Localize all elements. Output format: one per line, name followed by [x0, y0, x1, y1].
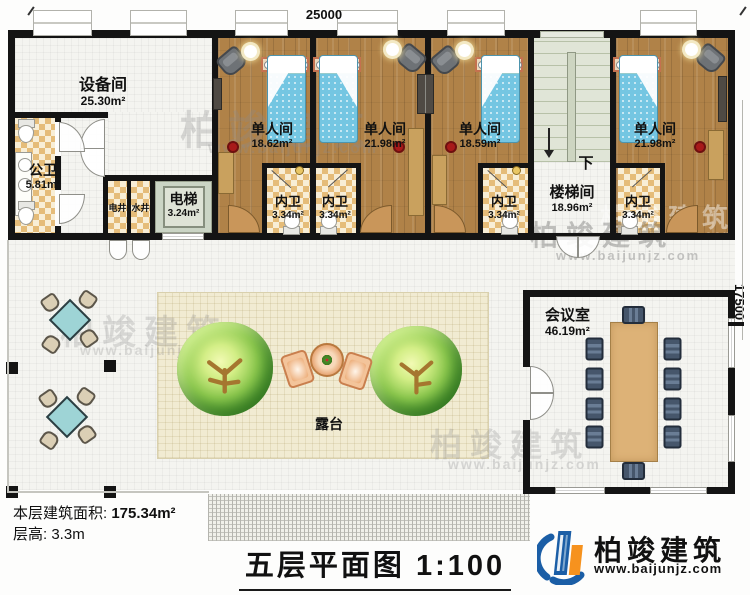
tree-branches — [387, 344, 446, 400]
conference-chair — [622, 462, 645, 480]
room-label-public-wc: 公卫5.81m² — [16, 163, 70, 191]
wc3-door-hinge — [512, 166, 521, 175]
facade-window-1 — [33, 10, 92, 36]
wc1-door-hinge — [295, 166, 304, 175]
column — [104, 360, 116, 372]
dimension-tick — [739, 6, 746, 15]
facade-window-3 — [235, 10, 288, 36]
tree-branches — [194, 341, 255, 399]
floor-lamp — [458, 44, 471, 57]
room-label-elec-shaft: 电井 — [108, 203, 127, 213]
dimension-ext-line — [742, 100, 743, 340]
lower-roof-hatch — [208, 494, 530, 541]
table-centerpiece — [321, 354, 333, 366]
room-label-wc1: 内卫3.34m² — [266, 195, 310, 221]
terrace-rail-bottom — [7, 491, 209, 493]
room-label-equipment: 设备间25.30m² — [53, 77, 153, 108]
wall-meeting-bottom-b — [605, 487, 650, 494]
floor-plan: 柏竣建筑 www.baijunjz.com 柏竣建筑 www.baijunjz.… — [0, 0, 750, 595]
stairs-down-label: 下 — [576, 156, 596, 173]
conference-chair — [586, 368, 604, 391]
tree — [370, 326, 462, 416]
room-label-wc3: 内卫3.34m² — [481, 195, 527, 221]
wall-meeting-top — [523, 290, 735, 297]
wall-wc2-top — [313, 163, 361, 168]
room-label-single3: 单人间18.59m² — [436, 122, 524, 150]
conference-table — [610, 322, 658, 462]
room-label-terrace: 露台 — [299, 417, 359, 433]
floor-lamp — [386, 43, 399, 56]
wall-wc1-top — [262, 163, 312, 168]
conference-chair — [664, 398, 682, 421]
wall-wc3-top — [478, 163, 530, 168]
room-label-single4: 单人间21.98m² — [611, 122, 699, 150]
room-label-wc2: 内卫3.34m² — [314, 195, 356, 221]
wall-wc4-top — [613, 163, 665, 168]
facade-window-6 — [640, 10, 697, 36]
wall-meeting-left-a — [523, 290, 530, 367]
terrace-rail-left — [7, 240, 9, 492]
dimension-tick — [728, 322, 744, 326]
dimension-right: 17500 — [732, 284, 747, 320]
meeting-window-bottom1 — [555, 487, 605, 494]
wall-meeting-right-b — [728, 368, 735, 415]
desk-bedroom3 — [432, 155, 447, 205]
desk-bedroom4 — [708, 130, 724, 180]
stairs-arrow-head — [544, 150, 554, 158]
meeting-window-bottom2 — [650, 487, 707, 494]
room-label-single2: 单人间21.98m² — [341, 122, 429, 150]
wall-wc-right-a — [55, 112, 61, 122]
elevator-door — [162, 233, 204, 240]
wall-right — [728, 30, 735, 240]
wall-meeting-bottom-a — [523, 487, 555, 494]
facade-window-2 — [130, 10, 187, 36]
desk-bedroom1 — [218, 152, 234, 194]
floor-lamp — [685, 43, 698, 56]
room-label-wc4: 内卫3.34m² — [615, 195, 661, 221]
water-shaft-door — [132, 240, 150, 260]
wall-shaft-top — [103, 175, 213, 181]
conference-chair — [586, 338, 604, 361]
wall-wc2-right — [356, 163, 361, 233]
floor-height-text: 层高: 3.3m — [13, 523, 85, 544]
wall-left — [8, 30, 15, 240]
facade-window-5 — [447, 10, 505, 36]
title-scale: 1:100 — [416, 550, 505, 582]
conference-chair — [622, 306, 645, 324]
room-label-single1: 单人间18.62m² — [228, 122, 316, 150]
meeting-window-right2 — [728, 415, 735, 462]
wall-meeting-left-b — [523, 420, 530, 494]
wardrobe-bedroom4 — [718, 76, 727, 122]
title-text: 五层平面图 — [245, 550, 405, 582]
floor-area-text: 本层建筑面积: 175.34m² — [13, 502, 176, 523]
brand-logo-icon — [537, 525, 591, 585]
wardrobe-shared — [417, 74, 434, 114]
wall-wc-right-c — [55, 226, 61, 240]
brand-url: www.baijunjz.com — [594, 561, 722, 576]
room-label-elevator: 电梯3.24m² — [155, 192, 212, 219]
stairs-arrow-line — [548, 128, 550, 152]
room-label-stairwell: 楼梯间18.96m² — [528, 185, 616, 214]
dimension-top: 25000 — [300, 7, 348, 22]
elec-shaft-door — [109, 240, 127, 260]
toilet-icon — [17, 119, 34, 143]
conference-chair — [664, 368, 682, 391]
wall-meeting-right-c — [728, 462, 735, 494]
floor-lamp — [244, 45, 257, 58]
conference-chair — [586, 426, 604, 449]
room-label-water-shaft: 水井 — [131, 203, 150, 213]
wardrobe-bedroom1 — [213, 78, 222, 110]
stairwell-window — [540, 31, 604, 38]
stairs-rail — [567, 52, 576, 162]
room-label-meeting: 会议室46.19m² — [545, 308, 625, 338]
conference-chair — [664, 426, 682, 449]
toilet-icon2 — [17, 201, 34, 225]
tree — [177, 322, 273, 416]
conference-chair — [664, 338, 682, 361]
conference-chair — [586, 398, 604, 421]
terrace-round-table — [310, 343, 344, 377]
